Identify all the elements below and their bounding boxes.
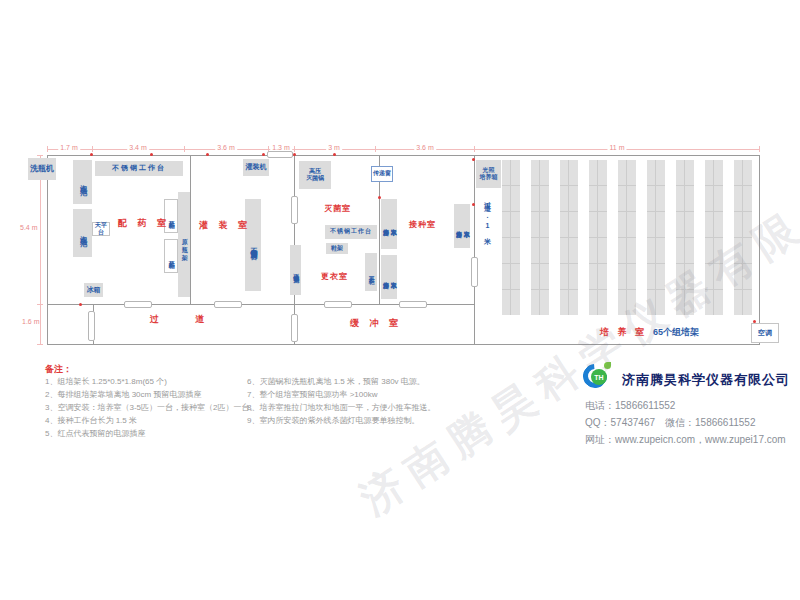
power-socket-dot xyxy=(150,153,153,156)
note-item: 8、培养室推拉门地坎和地面一平，方便小推车推送。 xyxy=(247,402,435,413)
laminar-flow-bench: 双人水平 超净工作台 xyxy=(454,204,470,248)
stainless-bench: 不锈钢条凳 xyxy=(290,245,301,295)
note-item: 2、每排组培架靠墙离地 30cm 预留电源插座 xyxy=(45,389,201,400)
culture-rack-column xyxy=(560,160,578,315)
stainless-filling-table: 不锈钢灌装台 xyxy=(245,199,261,291)
room-label-changing: 更衣室 xyxy=(321,271,348,282)
culture-rack-column xyxy=(676,160,694,315)
culture-rack-count: 65个组培架 xyxy=(653,326,699,339)
locker: 更衣柜 xyxy=(365,253,377,291)
door-symbol xyxy=(471,257,478,287)
culture-rack-column xyxy=(531,160,549,315)
dim-label: 3.6 m xyxy=(414,144,436,151)
power-socket-dot xyxy=(262,153,265,156)
dim-tick xyxy=(294,146,295,152)
room-label-inoculation: 接种室 xyxy=(409,219,436,230)
dim-tick xyxy=(375,146,376,152)
door-symbol xyxy=(124,301,152,308)
note-item: 3、空调安装：培养室（3-5匹）一台，接种室（2匹）一台。 xyxy=(45,402,257,413)
dim-label: 3.4 m xyxy=(127,144,149,151)
air-conditioner: 空调 xyxy=(751,323,779,343)
dim-tick xyxy=(37,344,43,345)
dim-label: 1.3 m xyxy=(270,144,292,151)
dim-tick xyxy=(759,146,760,152)
logo-leaf xyxy=(604,362,611,369)
stainless-worktable: 不锈钢工作台 xyxy=(325,225,377,239)
wall xyxy=(47,155,48,345)
wall xyxy=(474,155,475,345)
wall xyxy=(190,155,191,305)
note-item: 5、红点代表预留的电源插座 xyxy=(45,428,145,439)
door-symbol xyxy=(291,314,298,342)
door-symbol xyxy=(399,301,427,308)
power-socket-dot xyxy=(472,203,475,206)
company-name: 济南腾昊科学仪器有限公司 xyxy=(622,371,790,389)
light-incubator: 光照 培养箱 xyxy=(476,160,501,188)
power-socket-dot xyxy=(90,153,93,156)
room-label-sterilize: 灭菌室 xyxy=(324,203,351,214)
room-label-buffer: 缓 冲 室 xyxy=(350,317,402,330)
logo-monogram: TH xyxy=(591,369,607,385)
dim-tick xyxy=(37,304,43,305)
dim-label: 1.6 m xyxy=(22,318,40,325)
power-socket-dot xyxy=(79,303,82,306)
culture-rack-column xyxy=(734,160,752,315)
balance-table: 天平台 xyxy=(92,222,110,236)
dim-tick xyxy=(474,146,475,152)
wall xyxy=(47,155,760,156)
company-phone: 电话：15866611552 xyxy=(585,399,675,413)
company-website: 网址：www.zupeicn.com，www.zupei17.com xyxy=(585,433,786,447)
door-symbol xyxy=(324,301,352,308)
medicine-cabinet: 药品柜 xyxy=(164,239,178,273)
left-dimension-line xyxy=(40,155,41,345)
aisle-label-1-1m: 过道1.1米 xyxy=(482,196,492,256)
note-item: 1、组培架长 1.25*0.5*1.8m(65 个) xyxy=(45,376,167,387)
note-item: 9、室内所安装的紫外线杀菌灯电源要单独控制。 xyxy=(247,415,419,426)
soak-pool: 泡瓶池 xyxy=(73,160,92,204)
culture-rack-column xyxy=(618,160,636,315)
power-socket-dot xyxy=(206,153,209,156)
dim-label: 3.6 m xyxy=(215,144,237,151)
floorplan-drawing: 济南腾昊科学仪器有限公司 1.7 m 3.4 m 3.6 m 1.3 m 3 m… xyxy=(0,0,800,600)
culture-room-label: 培 养 室 65个组培架 xyxy=(600,326,699,339)
wall xyxy=(47,344,760,345)
laminar-flow-bench: 双人水平 超净工作台 xyxy=(381,199,397,249)
culture-rack-column xyxy=(502,160,520,315)
dim-tick xyxy=(184,146,185,152)
note-item: 6、灭菌锅和洗瓶机离地 1.5 米，预留 380v 电源。 xyxy=(247,376,425,387)
room-label-culture: 培 养 室 xyxy=(600,326,647,339)
door-symbol xyxy=(214,301,242,308)
company-qq-wechat: QQ：57437467 微信：15866611552 xyxy=(585,416,755,430)
power-socket-dot xyxy=(472,158,475,161)
bottle-washer: 洗瓶机 xyxy=(28,158,56,180)
door-symbol xyxy=(291,196,298,224)
culture-rack-column xyxy=(647,160,665,315)
power-socket-dot xyxy=(333,153,336,156)
fridge: 冰箱 xyxy=(84,283,103,297)
dim-label: 5.4 m xyxy=(20,224,38,231)
shoe-rack: 鞋架 xyxy=(326,243,348,254)
power-socket-dot xyxy=(293,153,296,156)
door-symbol xyxy=(88,311,95,341)
dim-tick xyxy=(47,146,48,152)
dim-label: 11 m xyxy=(607,144,626,151)
room-label-filling: 灌 装 室 xyxy=(199,219,251,232)
dim-label: 1.7 m xyxy=(58,144,80,151)
stainless-worktable: 不锈钢工作台 xyxy=(95,161,183,176)
top-dimension-line xyxy=(47,149,760,150)
dim-tick xyxy=(92,146,93,152)
room-label-prep: 配 药 室 xyxy=(118,217,170,230)
notes-title: 备注： xyxy=(45,363,72,376)
filling-machine: 灌装机 xyxy=(243,159,269,176)
laminar-flow-bench: 双人水平 超净工作台 xyxy=(381,255,397,299)
door-symbol xyxy=(267,151,293,158)
dim-tick xyxy=(37,155,43,156)
pass-through-window: 传递窗 xyxy=(371,166,393,182)
wall xyxy=(759,155,760,345)
autoclave: 高压 灭菌锅 xyxy=(299,161,331,189)
soak-pool: 泡瓶池 xyxy=(73,209,92,257)
company-logo: TH xyxy=(583,362,615,394)
culture-rack-column xyxy=(705,160,723,315)
note-item: 4、接种工作台长为 1.5 米 xyxy=(45,415,137,426)
dim-label: 3 m xyxy=(326,144,342,151)
bottle-rack: 原瓶架 xyxy=(178,192,190,297)
culture-rack-column xyxy=(589,160,607,315)
note-item: 7、整个组培室预留电源功率 >100kw xyxy=(247,389,377,400)
room-label-corridor: 过 道 xyxy=(150,313,210,326)
